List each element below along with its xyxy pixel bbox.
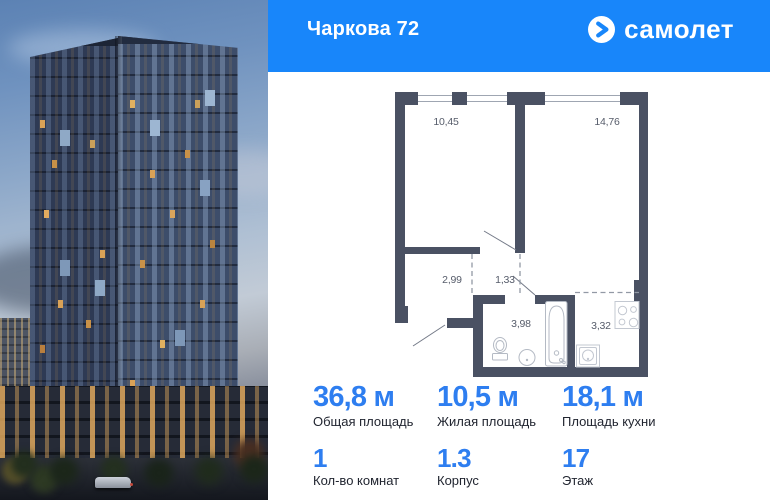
stat-label: Площадь кухни (562, 415, 655, 429)
header: Чаркова 72 самолет (268, 0, 770, 72)
stove-icon (615, 302, 639, 329)
toilet-icon (493, 338, 508, 361)
kitchen-sink-icon (577, 345, 600, 367)
info-panel: Чаркова 72 самолет (268, 0, 770, 500)
street (0, 458, 268, 500)
stat-kitchen-area: 18,1 м Площадь кухни (562, 383, 655, 429)
stat-living-area: 10,5 м Жилая площадь (437, 383, 562, 429)
stat-label: Жилая площадь (437, 415, 562, 429)
apartment-stats: 36,8 м Общая площадь 10,5 м Жилая площад… (313, 383, 655, 489)
stat-value: 18,1 м (562, 383, 655, 412)
plan-walls (395, 92, 648, 377)
stat-rooms-count: 1 Кол-во комнат (313, 445, 437, 488)
sink-icon (519, 350, 535, 366)
stat-label: Этаж (562, 474, 593, 488)
stat-value: 10,5 м (437, 383, 562, 412)
project-title: Чаркова 72 (307, 18, 419, 41)
stat-label: Кол-во комнат (313, 474, 437, 488)
stat-value: 36,8 м (313, 383, 437, 412)
stat-floor: 17 Этаж (562, 445, 593, 488)
samolet-logo[interactable]: самолет (588, 14, 734, 45)
room-area-label: 3,98 (511, 318, 531, 330)
room-area-label: 2,99 (442, 274, 462, 286)
stat-label: Корпус (437, 474, 562, 488)
listing-card: Чаркова 72 самолет (0, 0, 770, 500)
arrow-right-circle-icon (588, 16, 615, 43)
stats-row-details: 1 Кол-во комнат 1.3 Корпус 17 Этаж (313, 445, 655, 488)
room-area-label: 1,33 (495, 274, 515, 286)
stat-value: 17 (562, 445, 593, 471)
stat-label: Общая площадь (313, 415, 437, 429)
car (95, 477, 131, 488)
room-area-label: 3,32 (591, 320, 611, 332)
brand-name: самолет (624, 14, 734, 45)
trees (0, 0, 18, 18)
stat-value: 1.3 (437, 445, 562, 471)
room-area-label: 14,76 (594, 116, 619, 128)
building-photo (0, 0, 268, 500)
stats-row-areas: 36,8 м Общая площадь 10,5 м Жилая площад… (313, 383, 655, 429)
stat-total-area: 36,8 м Общая площадь (313, 383, 437, 429)
bathtub-icon (546, 302, 568, 367)
stat-building: 1.3 Корпус (437, 445, 562, 488)
stat-value: 1 (313, 445, 437, 471)
floor-plan: 10,45 14,76 2,99 1,33 3,98 3,32 (395, 92, 648, 377)
floor-plan-drawing (395, 92, 648, 377)
room-area-label: 10,45 (433, 116, 458, 128)
